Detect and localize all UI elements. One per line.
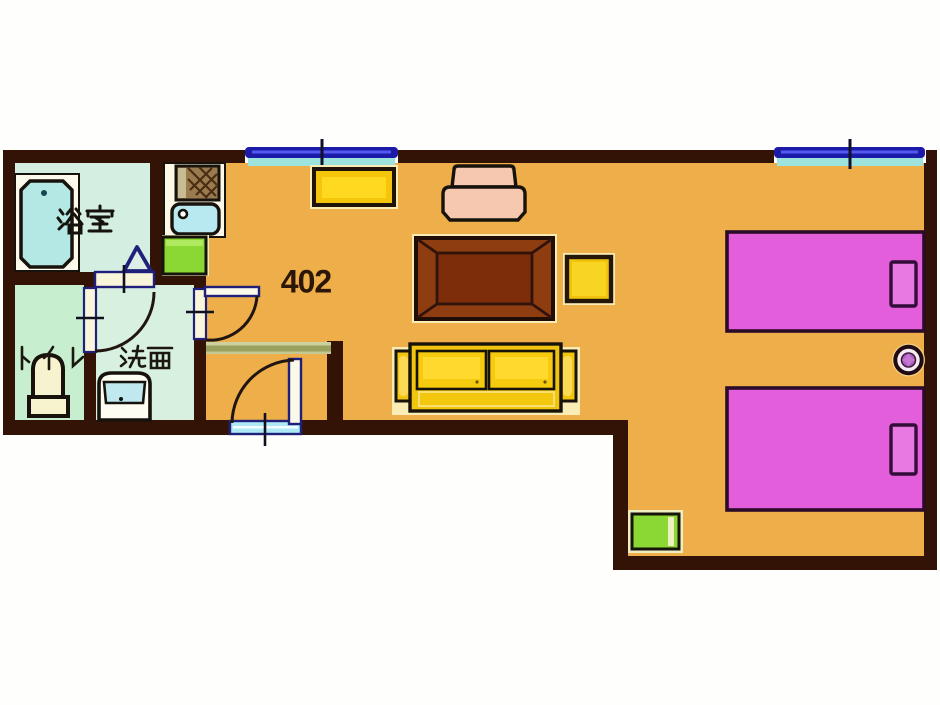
svg-text:402: 402	[281, 264, 332, 300]
